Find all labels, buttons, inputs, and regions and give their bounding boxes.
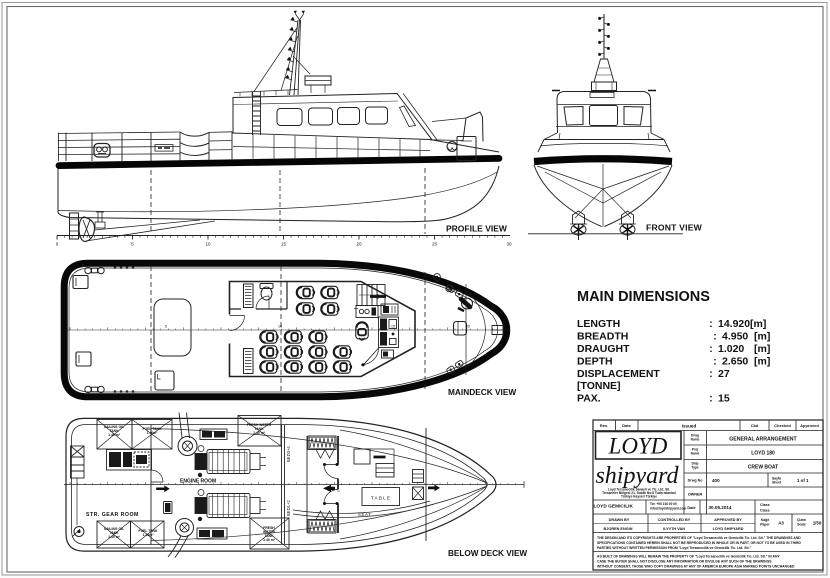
svg-text:CONTROLLED BY: CONTROLLED BY [658, 518, 691, 522]
svg-text:WITHOUT CONSENT, THOSE WHO COP: WITHOUT CONSENT, THOSE WHO COPY DRAWINGS… [597, 565, 795, 569]
svg-text:MAINDECK VIEW: MAINDECK VIEW [448, 387, 516, 397]
svg-text:GENERAL ARRANGEMENT: GENERAL ARRANGEMENT [729, 437, 797, 443]
svg-text:shipyard: shipyard [595, 463, 679, 489]
svg-text:Scale: Scale [797, 523, 806, 527]
svg-text:1 of 1: 1 of 1 [797, 478, 809, 483]
svg-text:1.020: 1.020 [718, 343, 744, 355]
svg-text:Sheet: Sheet [772, 481, 782, 485]
svg-text:400: 400 [712, 478, 720, 483]
svg-text:APPROVED BY: APPROVED BY [714, 518, 742, 522]
svg-text:FRONT VIEW: FRONT VIEW [646, 223, 703, 233]
svg-text:Tel: +90 216 00 00: Tel: +90 216 00 00 [650, 502, 677, 506]
svg-text::: : [709, 368, 713, 380]
svg-text:Issued: Issued [682, 424, 697, 429]
svg-text:[m]: [m] [750, 318, 766, 330]
svg-text:Paper: Paper [760, 523, 770, 527]
svg-text:Ckd: Ckd [751, 423, 759, 428]
svg-text:10: 10 [278, 325, 282, 329]
svg-text:DRAWN BY: DRAWN BY [609, 518, 630, 522]
svg-text:2.650: 2.650 [722, 356, 748, 368]
svg-text:1.40m³: 1.40m³ [147, 431, 159, 435]
svg-text:14.920: 14.920 [718, 318, 750, 330]
svg-text:1.40 m³: 1.40 m³ [263, 538, 276, 542]
svg-text:DEPTH: DEPTH [577, 356, 613, 368]
svg-text:[m]: [m] [754, 331, 770, 343]
svg-text::: : [709, 318, 713, 330]
svg-text:30: 30 [506, 242, 512, 247]
svg-text:Name: Name [691, 438, 700, 442]
svg-text:25: 25 [432, 242, 438, 247]
svg-text:4.950: 4.950 [722, 331, 748, 343]
svg-text:PROFILE VIEW: PROFILE VIEW [446, 224, 508, 234]
svg-text:A3: A3 [778, 521, 784, 526]
svg-text:CREW BOAT: CREW BOAT [748, 465, 778, 471]
svg-text:CASE THE BUYER SHALL NOT DISCL: CASE THE BUYER SHALL NOT DISCLOSE ANY IN… [597, 560, 772, 564]
svg-text::: : [713, 331, 717, 343]
svg-text:30.05.2014: 30.05.2014 [709, 505, 732, 510]
svg-text:10: 10 [205, 242, 211, 247]
svg-text:info@loydshipyard.com: info@loydshipyard.com [650, 507, 686, 511]
svg-text:[m]: [m] [754, 343, 770, 355]
svg-text:15: 15 [281, 242, 287, 247]
svg-text:Türkiye Kayseri Türkiye: Türkiye Kayseri Türkiye [621, 495, 657, 499]
svg-text:THE DESIGN AND ITS COPYRIGHTS: THE DESIGN AND ITS COPYRIGHTS ARE PROPER… [597, 536, 801, 540]
svg-text:BREADTH: BREADTH [577, 331, 628, 343]
svg-text:LOYD GEMICILIK: LOYD GEMICILIK [594, 504, 634, 510]
svg-text:MAIN DIMENSIONS: MAIN DIMENSIONS [577, 289, 710, 305]
svg-text:1.40 m³: 1.40 m³ [108, 535, 121, 539]
svg-text:1.40 m³: 1.40 m³ [253, 431, 266, 435]
svg-text:1.40 m³: 1.40 m³ [108, 433, 121, 437]
svg-text:AS BUILT OF DRAWINGS WILL REMA: AS BUILT OF DRAWINGS WILL REMAIN THE PRO… [597, 555, 780, 559]
svg-text:Class: Class [760, 509, 770, 513]
svg-text:ILYVTH VAN: ILYVTH VAN [663, 527, 685, 531]
svg-text:BED1+2: BED1+2 [286, 500, 291, 516]
svg-text:Rev.: Rev. [600, 423, 608, 428]
svg-text:15: 15 [391, 325, 395, 329]
svg-text:LOYD SHIPYARD: LOYD SHIPYARD [713, 527, 744, 531]
svg-text:TABLE: TABLE [371, 496, 391, 501]
svg-text::: : [709, 393, 713, 405]
svg-text:[TONNE]: [TONNE] [577, 380, 621, 392]
svg-text:SPECIFICATIONS CONTAINED HEREI: SPECIFICATIONS CONTAINED HEREIN SHALL NO… [597, 541, 801, 545]
svg-text:PAX.: PAX. [577, 393, 601, 405]
svg-text:LENGTH: LENGTH [577, 318, 620, 330]
svg-text:DISPLACEMENT: DISPLACEMENT [577, 368, 660, 380]
svg-text::: : [713, 356, 717, 368]
svg-text:Type: Type [691, 466, 698, 470]
svg-text:Kağıt: Kağıt [761, 518, 770, 522]
svg-text:Class: Class [760, 503, 770, 507]
svg-text:5: 5 [165, 325, 167, 329]
svg-text::: : [709, 343, 713, 355]
svg-text:20: 20 [356, 242, 362, 247]
svg-text:LOYD: LOYD [608, 434, 668, 459]
svg-text:PARTIES WITHOUT WRITTEN PERM: PARTIES WITHOUT WRITTEN PERMISSION FROM … [597, 546, 752, 550]
svg-text:STR. GEAR ROOM: STR. GEAR ROOM [86, 512, 139, 518]
svg-text:OWNER: OWNER [688, 493, 703, 497]
svg-text:15: 15 [718, 393, 730, 405]
svg-text:1/50: 1/50 [813, 521, 822, 526]
svg-text:Drwg No: Drwg No [688, 479, 704, 483]
svg-text:27: 27 [718, 368, 730, 380]
svg-text:Name: Name [691, 452, 700, 456]
svg-text:Date: Date [622, 423, 631, 428]
svg-text:Checked: Checked [774, 423, 791, 428]
svg-text:[m]: [m] [754, 356, 770, 368]
svg-text:ENGINE ROOM: ENGINE ROOM [180, 479, 216, 485]
svg-text:BELOW DECK VIEW: BELOW DECK VIEW [448, 549, 527, 558]
svg-text:Date: Date [687, 506, 695, 510]
svg-text:Çizim: Çizim [797, 518, 806, 522]
svg-text:DRAUGHT: DRAUGHT [577, 343, 630, 355]
svg-text:BJOREN ENGIN: BJOREN ENGIN [604, 527, 633, 531]
svg-text:1.40m³: 1.40m³ [143, 533, 155, 537]
svg-text:Approved: Approved [800, 423, 819, 428]
svg-text:LOYD 180: LOYD 180 [751, 451, 775, 457]
svg-text:BED3+4: BED3+4 [286, 446, 291, 462]
